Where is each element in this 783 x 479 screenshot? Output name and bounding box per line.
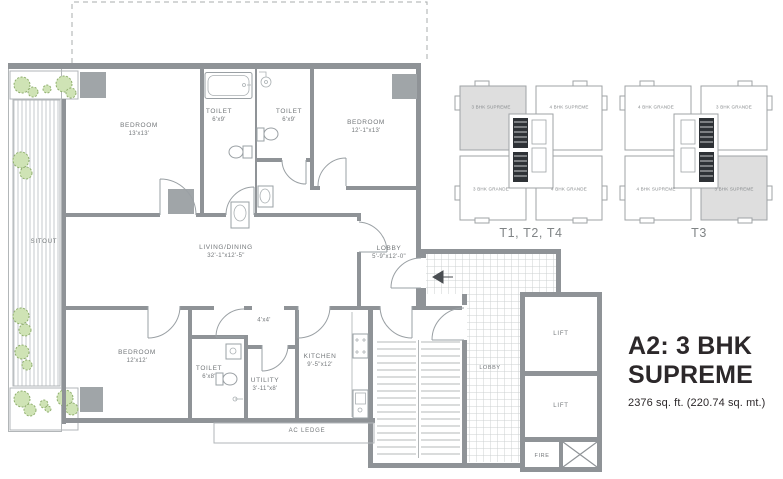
title-block: A2: 3 BHK SUPREME 2376 sq. ft. (220.74 s… [628,332,765,409]
wc-icon [229,146,252,158]
room-label-bedroom1: BEDROOM 13'x13' [120,122,158,138]
room-label-passage: 4'x4' [257,316,270,325]
lift1-label: LIFT [553,331,569,337]
lift2-label: LIFT [553,403,569,409]
keyplan1-unit-tr-label: 4 BHK SUPREME [549,105,588,110]
basin-icon [231,202,249,228]
sitout-deck [9,69,79,432]
room-label-lobby: LOBBY 5'-9"x12'-0" [372,245,406,261]
room-label-kitchen: KITCHEN 9'-5"x12' [304,353,337,369]
wc-icon [257,128,278,141]
kitchen-sink-icon [353,390,368,418]
unit-title-line1: A2: 3 BHK [628,332,765,361]
ac-ledge-label: AC LEDGE [289,428,326,434]
room-label-utility: UTILITY 3'-11"x8' [251,377,279,393]
room-label-bedroom3: BEDROOM 12'x12' [118,349,156,365]
sitout-label: SITOUT [31,239,58,245]
room-label-living-dining: LIVING/DINING 32'-1"x12'-5" [199,244,253,260]
basin-icon [258,186,273,207]
bathtub-icon [205,73,252,99]
basin-icon [226,344,241,359]
keyplan1-unit-tl-label: 3 BHK SUPREME [471,105,510,110]
keyplan2-unit-tl-label: 4 BHK GRANDE [638,105,674,110]
keyplan-t1-t2-t4 [455,81,607,223]
keyplan2-unit-bl-label: 4 BHK SUPREME [636,187,675,192]
shaft-x-icon [563,442,597,467]
keyplan1-unit-br-label: 4 BHK GRANDE [551,187,587,192]
keyplan1-unit-bl-label: 3 BHK GRANDE [473,187,509,192]
keyplan1-caption: T1, T2, T4 [499,226,562,240]
shower-icon [259,72,271,87]
room-label-toilet3: TOILET 6'x8' [196,365,222,381]
floorplan-canvas: BEDROOM 13'x13' TOILET 6'x9' TOILET 6'x9… [0,0,783,479]
keyplan2-unit-tr-label: 3 BHK GRANDE [716,105,752,110]
fire-lift-label: FIRE [535,453,550,459]
room-label-toilet2: TOILET 6'x9' [276,108,302,124]
terrace-dashed-outline [72,2,427,63]
room-label-toilet1: TOILET 6'x9' [206,108,232,124]
keyplan2-caption: T3 [691,226,707,240]
unit-area-text: 2376 sq. ft. (220.74 sq. mt.) [628,397,765,409]
keyplan-t3 [620,81,772,223]
keyplan2-unit-br-label: 3 BHK SUPREME [714,187,753,192]
room-label-bedroom2: BEDROOM 12'-1"x13' [347,119,385,135]
unit-title-line2: SUPREME [628,361,765,390]
core-lobby-label: LOBBY [479,365,500,371]
